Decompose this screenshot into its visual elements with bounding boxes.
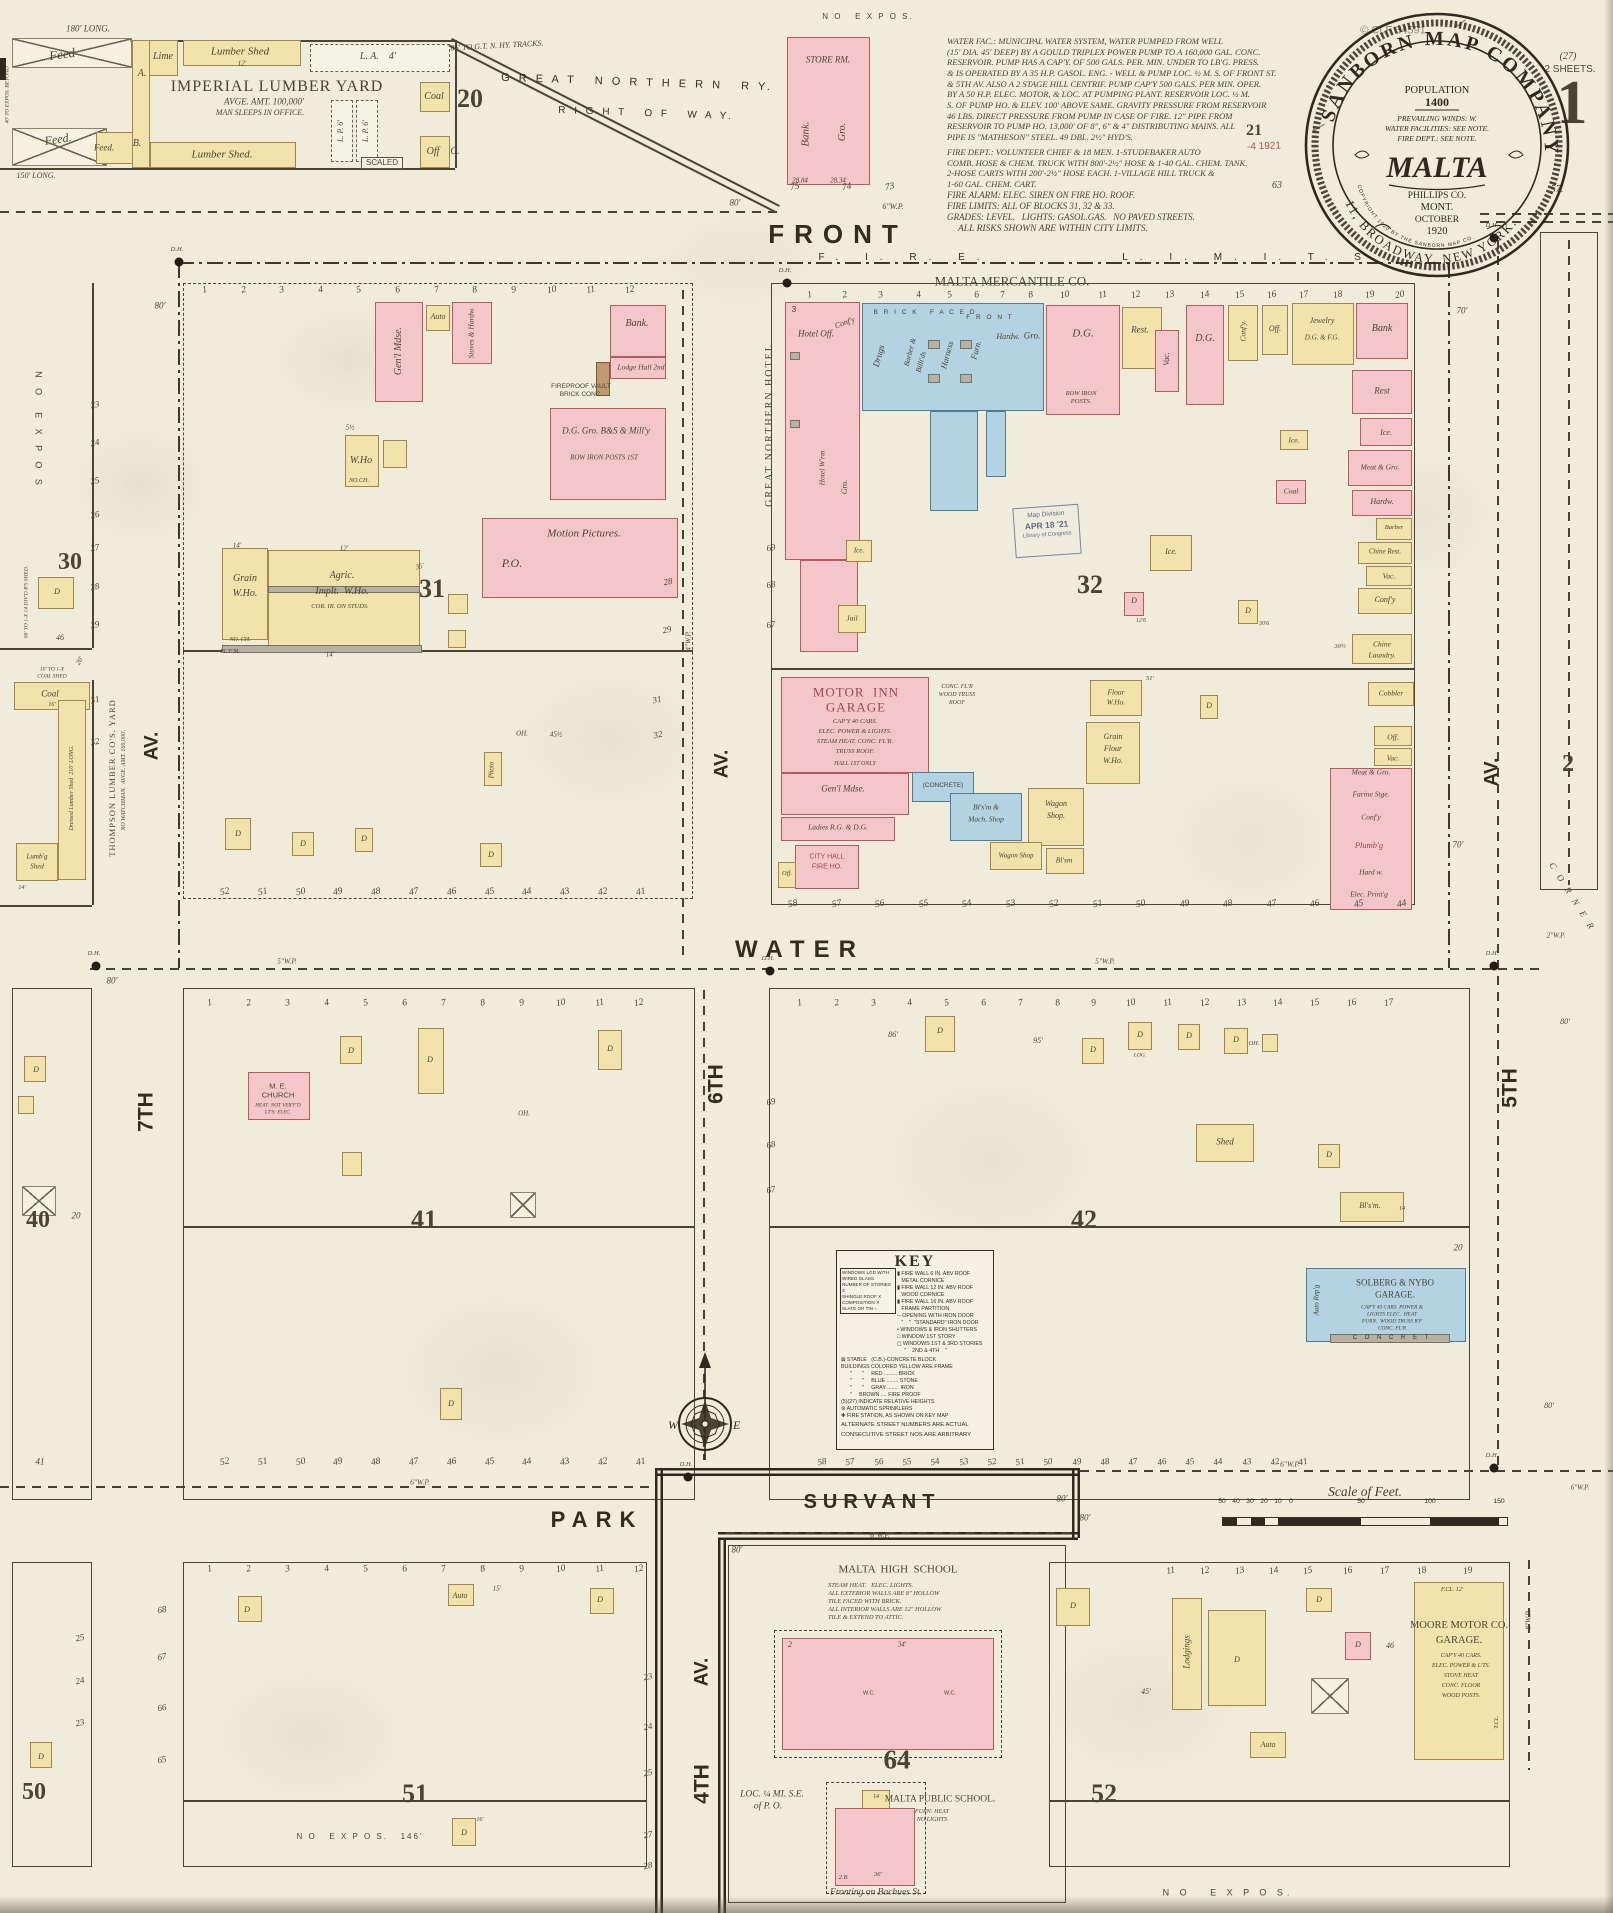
seal-fire: FIRE DEPT.: SEE NOTE. [1396,134,1476,143]
lot-number: 11 [595,1564,606,1575]
map-label: 6"W.P. [410,1478,430,1486]
lot-number: 11 [1163,998,1174,1009]
lot-number: 73 [884,182,895,193]
lot-number: 13 [1234,1566,1245,1577]
map-label: Conf'y. [1239,321,1247,342]
lot-number: 19 [1364,290,1375,301]
map-label: 20 [1454,1244,1463,1253]
lot-number: 28 [90,582,101,593]
map-label: 180' LONG. [66,25,110,34]
map-label: 3 [792,306,796,314]
lot-number: 75 [789,182,800,193]
map-label: Chine [1373,640,1391,648]
sanborn-map-sheet: 180' LONG.FeedLimeLumber Shed12'L. A. 4'… [0,0,1613,1913]
scale-cell [1361,1518,1430,1525]
street-label-av: AV. [713,750,732,779]
hydrant-dot [92,962,101,971]
map-label: CONC. FL'R [941,684,972,690]
map-label: D.G. [1072,329,1093,340]
map-label: 36' [874,1872,882,1879]
lot-number: 48 [1222,899,1233,910]
map-line [1072,1468,1080,1538]
map-label: Auto Rep'g [1314,1285,1321,1316]
map-label: Ice. [854,548,864,555]
high-school-note: STEAM HEAT. ELEC. LIGHTS.ALL EXTERIOR WA… [828,1582,941,1622]
key-color-legend: ⊠ STABLE (C.B.)-CONCRETE BLOCKBUILDINGS … [841,1357,989,1420]
map-label: D [1070,1602,1076,1610]
block-number-2: 2 [1562,752,1574,776]
post-office-label: P.O. [502,557,522,569]
sanborn-seal: SANBORN MAP COMPANY. 11, BROADWAY, NEW Y… [1297,5,1581,289]
street-label-4th: 4TH [692,1764,713,1804]
street-label-av: AV. [693,1658,712,1687]
lot-number: 46 [1309,899,1320,910]
map-label: Photo [489,762,496,779]
map-label: Off [427,147,440,157]
lot-number: 11 [1098,290,1109,301]
map-label: Lodgings [1183,1635,1192,1669]
map-label: Feed. [44,131,72,147]
map-label: N O E X P O S. [822,13,913,21]
map-label: Auto [430,313,445,321]
map-label: Lumber Shed. [191,150,252,161]
map-line [769,1226,1470,1228]
note-line: WATER FAC.: MUNICIPAL WATER SYSTEM, WATE… [947,36,1276,47]
map-label: Flour [1107,688,1124,696]
map-label: Dressed Lumber Shed 210' LONG. [69,745,75,830]
map-label: 80' [1544,1402,1554,1410]
lot-number: 17 [1383,998,1394,1009]
seal-graphic: SANBORN MAP COMPANY. 11, BROADWAY, NEW Y… [1297,5,1581,289]
map-label: Bl's'm. [1359,1202,1380,1210]
block-number-20: 20 [457,86,483,112]
map-label: Vac. [1387,754,1400,762]
key-line: ✚ FIRE STATION, AS SHOWN ON KEY MAP [841,1413,989,1420]
map-label: Vac. [1383,572,1396,580]
map-label: Conf'y [1361,813,1381,821]
map-line [771,668,1415,670]
map-label: 14' [326,652,335,659]
lot-number: 50 [1135,899,1146,910]
map-label: Implt. W.Ho. [315,587,368,597]
map-label: 14' [18,885,25,891]
map-label: 4"W.P. [684,631,692,651]
map-label: Off. [782,871,792,878]
map-label: C O N C R E T [1353,1335,1432,1341]
lot-number: 10 [555,1564,566,1575]
map-label: NO.CH. [349,478,369,484]
map-label: STORE RM. [806,56,850,65]
malta-mercantile-label: MALTA MERCANTILE CO. [935,275,1090,288]
key-line: ″ 2ND & 4TH ″ [897,1348,989,1355]
lot-number: 12 [1199,1566,1210,1577]
map-label: 6"W.P. [882,203,903,211]
compass-east: E [732,1418,741,1432]
map-label: FURN: HEAT [915,1809,949,1815]
building-brick [782,1638,994,1750]
lot-number: 55 [902,1457,913,1468]
map-label: Flour [1104,745,1122,753]
building-stone [930,411,978,511]
key-corner-table: WINDOWS LGD WITHWIRED GLASSNUMBER OF STO… [840,1268,896,1314]
note-line: (15' DIA. 45' DEEP) BY A GOULD TRIPLEX P… [947,47,1276,58]
lot-number: 17 [1298,290,1309,301]
map-label: D [361,835,367,843]
public-school-label: MALTA PUBLIC SCHOOL. [885,1795,996,1805]
map-label: F R O N T [966,315,1014,322]
scale-tick-label: 100 [1424,1498,1435,1505]
map-label: Bank. [625,319,648,329]
map-line [0,905,92,907]
building-brick [785,302,860,560]
map-line [183,1226,695,1228]
key-line: FRAME PARTITION [897,1306,989,1313]
map-label: D [427,1056,433,1064]
scale-cell [1251,1518,1265,1525]
lot-number: 69 [766,543,777,554]
lot-number: 25 [643,1768,654,1779]
scale-bar [1222,1517,1508,1526]
note-line: & IS OPERATED BY A 35 H.P. GASOL. ENG. -… [947,68,1276,79]
map-label: Gen'l Mdse. [821,785,864,794]
key-line: ″ ″ GRAY ........ IRON [841,1385,989,1392]
map-label: Shed [1216,1138,1234,1147]
block-number-30: 30 [58,550,82,574]
lot-number: 24 [90,438,101,449]
map-label: Elec. Print'g [1350,890,1388,898]
scale-cell [1292,1518,1361,1525]
map-label: 45½ [550,732,562,739]
key-line: WOOD CORNICE [897,1292,989,1299]
map-line [718,1538,726,1913]
map-label: 80' [732,1546,743,1555]
map-label: ROW IRON POSTS 1ST [570,455,638,462]
map-label: Feed. [94,144,114,153]
building-frame [448,594,468,614]
lot-number: 56 [873,1457,884,1468]
lot-number: 27 [643,1830,654,1841]
key-line: ″ BROWN .... FIRE PROOF [841,1392,989,1399]
lot-number: 10 [1059,290,1070,301]
map-label: 80' [1057,1495,1068,1504]
map-label: HALL 1ST ONLY [834,761,876,767]
map-label: Rest [1374,387,1390,396]
lot-number: 23 [75,1718,86,1729]
map-label: D [348,1047,354,1055]
note-line: TILE & EXTEND TO ATTIC. [828,1614,941,1622]
map-label: Agric. [330,571,355,581]
map-label: Motion Pictures. [547,529,621,540]
building-iron-detail [928,340,940,349]
lot-number: 15 [1234,290,1245,301]
note-line: 46 LBS. DIRECT PRESSURE FROM PUMP IN CAS… [947,111,1276,122]
map-label: 63 [1272,181,1282,191]
key-line: ⊛ AUTOMATIC SPRINKLERS [841,1406,989,1413]
lot-number: 23 [90,400,101,411]
note-line: COMB. HOSE & CHEM. TRUCK WITH 800'-2½" H… [947,158,1247,169]
map-label: Grain [233,574,257,584]
map-label: 20' [75,656,85,667]
lot-number: 67 [766,620,777,631]
key-footnote: ALTERNATE STREET NUMBERS ARE ACTUALCONSE… [841,1422,989,1440]
lot-number: 11 [1166,1566,1177,1577]
map-label: Lumb'g [27,854,48,861]
seal-population-value: 1400 [1425,95,1449,109]
map-label: Chine Rest. [1369,549,1401,556]
lot-number: 31 [652,695,663,706]
map-label: 86' TO G.T. N. HY. TRACKS. [450,40,543,53]
lot-number: 28 [643,1861,654,1872]
seal-county: PHILLIPS CO. [1408,191,1467,201]
map-label: 5"W.P. [277,957,297,965]
map-line [92,680,94,905]
lot-number: 50 [295,1457,306,1468]
map-label: of P. O. [754,1802,782,1812]
map-label: COAL SHED [37,674,66,680]
lot-number: 45 [1353,899,1364,910]
map-label: Lodge Hall 2nd [617,363,664,371]
map-label: D [448,1400,454,1408]
map-label: D [300,840,306,848]
map-label: D [607,1045,613,1053]
scale-tick-label: 50 [1357,1498,1365,1505]
lot-number: 32 [653,730,664,741]
map-label: D [1316,1596,1322,1604]
lot-number: 12 [624,285,635,296]
lot-number: 23 [643,1672,654,1683]
seal-month: OCTOBER [1415,215,1460,225]
block-number-40: 40 [26,1208,50,1232]
map-label: Auto [452,1592,467,1600]
building-brick [1186,305,1224,405]
note-line: GRADES: LEVEL. LIGHTS: GASOL.GAS. NO PAV… [947,212,1195,223]
lot-number: 52 [986,1457,997,1468]
building-brick [781,773,909,815]
building-brick [610,305,666,357]
lot-number: 42 [1269,1457,1280,1468]
fire-house-label: FIRE HO. [812,864,842,871]
building-frame [383,440,407,468]
key-line: ─ OPENING WITH IRON DOOR [897,1313,989,1320]
map-label: D.G. Gro. B&S & Mill'y [562,427,650,436]
map-label: GARAGE. [1436,1636,1482,1647]
lot-number: 11 [586,285,597,296]
scale-cell [1265,1518,1278,1525]
map-line [90,968,1545,970]
map-label: Wagon Shop [999,853,1034,860]
lot-number: 44 [1213,1457,1224,1468]
lot-number: 12 [633,1564,644,1575]
lot-number: 12 [633,998,644,1009]
motor-inn-garage-label: MOTOR INN [813,686,899,699]
block-number-50: 50 [22,1780,46,1804]
lot-number: 42 [597,1457,608,1468]
map-label: 10' TO 1-X [40,667,64,673]
map-label: 6"W.P. [1571,1485,1590,1492]
map-label: 12' [238,61,247,68]
city-hall-label: CITY HALL [809,854,844,861]
lot-number: 51 [257,1457,268,1468]
seal-city-name: MALTA [1385,151,1487,184]
lot-number: 66 [157,1703,168,1714]
map-label: 51' [1146,676,1154,683]
map-label: 5½ [346,425,355,432]
map-label: Jail [846,614,857,622]
paper-edge-shadow [0,1896,1613,1913]
map-label: L. P. 6' [337,120,345,142]
map-label: Farine Stge. [1352,790,1389,798]
hydrant-dot [1490,962,1499,971]
lot-number: 46 [446,1457,457,1468]
map-label: D [244,1606,250,1614]
lot-number: 17 [1379,1566,1390,1577]
lot-number: 54 [961,899,972,910]
lot-number: 15 [1302,1566,1313,1577]
map-label: CAP'Y 40 CARS. [833,719,877,726]
map-label: LOG. [1134,1053,1146,1059]
lot-number: 54 [930,1457,941,1468]
map-label: 6"W.P. [1280,1460,1300,1468]
map-label: D [1234,1656,1240,1664]
map-label: D [461,1829,467,1837]
map-line [1568,240,1570,885]
map-label: D [33,1066,39,1074]
key-line: ▮ FIRE WALL 16 IN. ABV ROOF [897,1299,989,1306]
key-line: METAL CORNICE [897,1278,989,1285]
block-number-32: 32 [1077,572,1103,598]
block-number-42: 42 [1071,1207,1097,1233]
map-label: Ice. [1165,548,1177,556]
building-iron-detail [960,374,972,383]
map-label: Bl's'm & [973,803,999,811]
lot-number: 43 [560,1457,571,1468]
key-line: ⊠ STABLE (C.B.)-CONCRETE BLOCK [841,1357,989,1364]
lot-number: 41 [635,1457,646,1468]
fire-limits-note: FIRE LIMITS: ALL OF BLOCKS 31, 32 & 33. [947,201,1115,212]
map-label: D [1131,597,1137,605]
building-iron-detail [790,352,800,360]
lot-number: 29 [90,620,101,631]
key-line: ◻ WINDOWS 1ST & 3RD STORIES [897,1341,989,1348]
lot-number: 57 [831,899,842,910]
key-line: ″ ″ BLUE ........ STONE [841,1378,989,1385]
map-label: OH. [516,731,528,738]
lot-number: 42 [597,887,608,898]
key-line: (5)(27) INDICATE RELATIVE HEIGHTS [841,1399,989,1406]
map-label: SCALED [361,157,403,169]
map-label: B. [133,139,142,149]
map-label: PL'F'M. [220,649,240,655]
map-label: Coal [41,690,59,699]
map-label: 16' [48,702,55,708]
block-outline [12,1562,92,1867]
lot-number: 10 [555,998,566,1009]
block-number-31: 31 [419,576,445,602]
map-label: CAP'Y 40 CARS. POWER & [1361,1305,1423,1310]
note-line: TILE FACED WITH BRICK. [828,1598,941,1606]
map-label: D [1186,1032,1192,1040]
building-iron-detail [790,420,800,428]
key-line: □ WINDOW 1ST STORY [897,1334,989,1341]
lot-number: 14 [1199,290,1210,301]
block-number-64: 64 [884,1747,911,1774]
grades-lights-note: GRADES: LEVEL. LIGHTS: GASOL.GAS. NO PAV… [947,212,1195,223]
lot-number: 45 [484,1457,495,1468]
street-label-av: AV. [1483,758,1502,787]
lot-number: 24 [643,1722,654,1733]
lot-number: 28 [663,577,674,588]
map-label: Stoves & Hardw. [467,308,475,359]
hydrant-label: D.H. [779,268,792,275]
scale-cell [1237,1518,1251,1525]
map-label: OH. [1248,1041,1259,1048]
hydrant-dot [175,258,184,267]
map-label: Ladies R.G. & D.G. [808,823,868,831]
map-label: Plumb'g [1355,841,1383,850]
scale-tick-label: 150 [1493,1498,1504,1505]
note-line: ALL EXTERIOR WALLS ARE 8" HOLLOW [828,1590,941,1598]
hydrant-dot [783,279,792,288]
note-line: 2-HOSE CARTS WITH 200'-2½" HOSE EACH. 1-… [947,168,1247,179]
map-label: 2"W.P. [1547,933,1566,940]
map-label: B R I C K F A C E D [873,310,976,317]
map-label: W.Ho. [1103,757,1123,765]
key-line: BUILDINGS COLORED YELLOW ARE FRAME [841,1364,989,1371]
map-label: 80' [1560,1018,1570,1026]
lot-number: 9 [510,286,517,296]
map-label: TRUSS ROOF. [836,749,875,756]
map-label: N O E X P O S [34,371,43,489]
lot-number: 56 [874,899,885,910]
thompson-lumber-yard-label: THOMPSON LUMBER CO'S. YARD [108,699,117,857]
map-label: BRICK CONC. [560,392,603,399]
lot-number: 55 [918,899,929,910]
lot-number: 74 [841,182,852,193]
scale-tick-label: 50 [1218,1498,1226,1505]
map-line [655,1468,1078,1476]
map-label: L. P. 6' [362,120,370,142]
map-label: 14 [873,1794,879,1800]
lot-number: 51 [1015,1457,1026,1468]
lot-number: 49 [1179,899,1190,910]
map-label: Lumber Shed [211,47,269,58]
lot-number: 53 [958,1457,969,1468]
note-line: PIPE IS "MATHESON" STEEL. 49 DBL. 2½" HY… [947,132,1276,143]
map-label: F. I. R. E. [818,253,991,263]
map-label: Mach. Shop [968,815,1004,823]
map-label: D [235,830,241,838]
note-line: FIRE LIMITS: ALL OF BLOCKS 31, 32 & 33. [947,201,1115,212]
note-line: 1-60 GAL. CHEM. CART. [947,179,1247,190]
map-label: 6"W.P. [870,1531,890,1539]
lot-number: 45 [484,887,495,898]
scale-tick-label: 0 [1289,1498,1293,1505]
lot-number: 52 [219,887,230,898]
map-label: Cobbler [1379,689,1404,697]
lot-number: 18 [1416,1566,1427,1577]
map-label: D.G. & F.G. [1305,335,1339,342]
map-label: NO. CH. [229,637,250,643]
lot-number: 16 [1266,290,1277,301]
lot-number: 16 [1342,1566,1353,1577]
lot-number: 25 [75,1633,86,1644]
note-line: RESERVOIR. PUMP HAS A CAP'Y. OF 500 GALS… [947,57,1276,68]
map-line [1497,240,1499,1465]
lot-number: 11 [595,998,606,1009]
map-label: 70' [1453,841,1464,850]
map-label: CAP'Y 40 CARS. [1441,1653,1482,1659]
map-label: Hard w. [1359,868,1383,876]
